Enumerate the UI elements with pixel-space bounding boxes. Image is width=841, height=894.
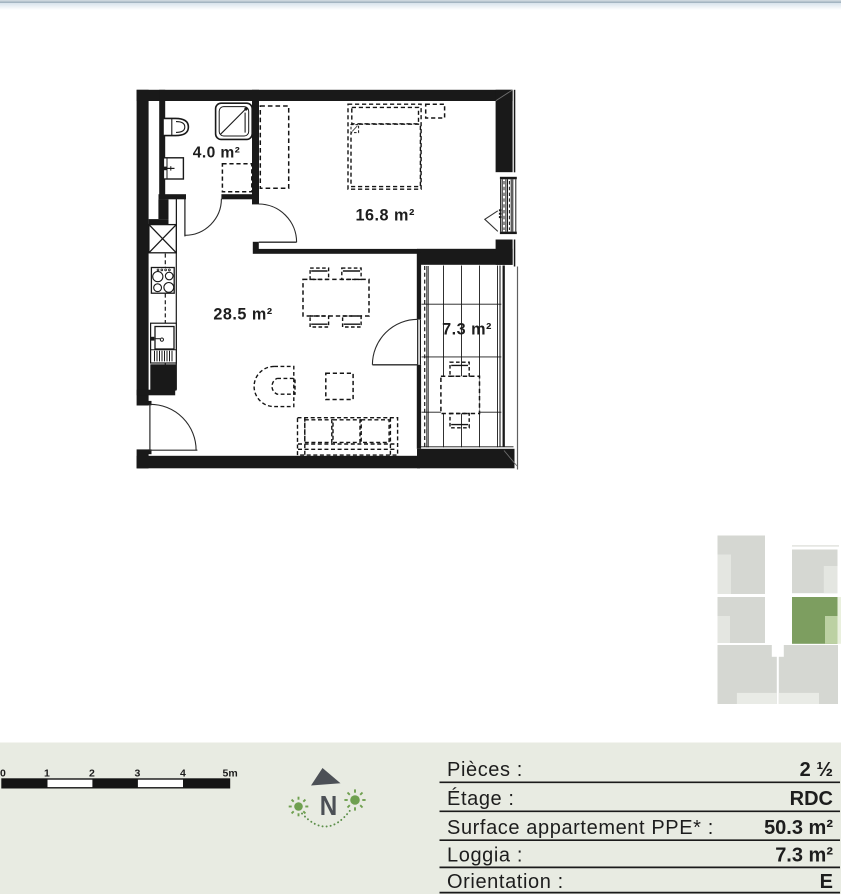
- svg-text:16.8 m²: 16.8 m²: [356, 207, 415, 225]
- svg-text:N: N: [320, 790, 338, 821]
- svg-text:7.3 m²: 7.3 m²: [775, 845, 833, 867]
- svg-text:3: 3: [135, 767, 141, 779]
- svg-text:Étage :: Étage :: [447, 787, 515, 810]
- svg-text:7.3 m²: 7.3 m²: [442, 321, 492, 339]
- svg-text:4: 4: [180, 767, 186, 779]
- svg-text:1: 1: [44, 767, 50, 779]
- svg-text:2: 2: [89, 767, 95, 779]
- svg-text:E: E: [820, 871, 833, 893]
- svg-text:28.5 m²: 28.5 m²: [213, 306, 272, 324]
- svg-text:Orientation :: Orientation :: [447, 871, 564, 893]
- svg-text:50.3 m²: 50.3 m²: [764, 817, 833, 839]
- svg-text:Loggia :: Loggia :: [447, 845, 523, 867]
- svg-text:4.0 m²: 4.0 m²: [193, 144, 240, 161]
- svg-text:0: 0: [0, 767, 6, 779]
- svg-text:Surface appartement PPE* :: Surface appartement PPE* :: [447, 817, 714, 839]
- svg-text:5m: 5m: [223, 767, 238, 779]
- svg-text:2 ½: 2 ½: [800, 759, 833, 781]
- svg-text:RDC: RDC: [790, 788, 833, 810]
- svg-text:Pièces :: Pièces :: [447, 759, 523, 781]
